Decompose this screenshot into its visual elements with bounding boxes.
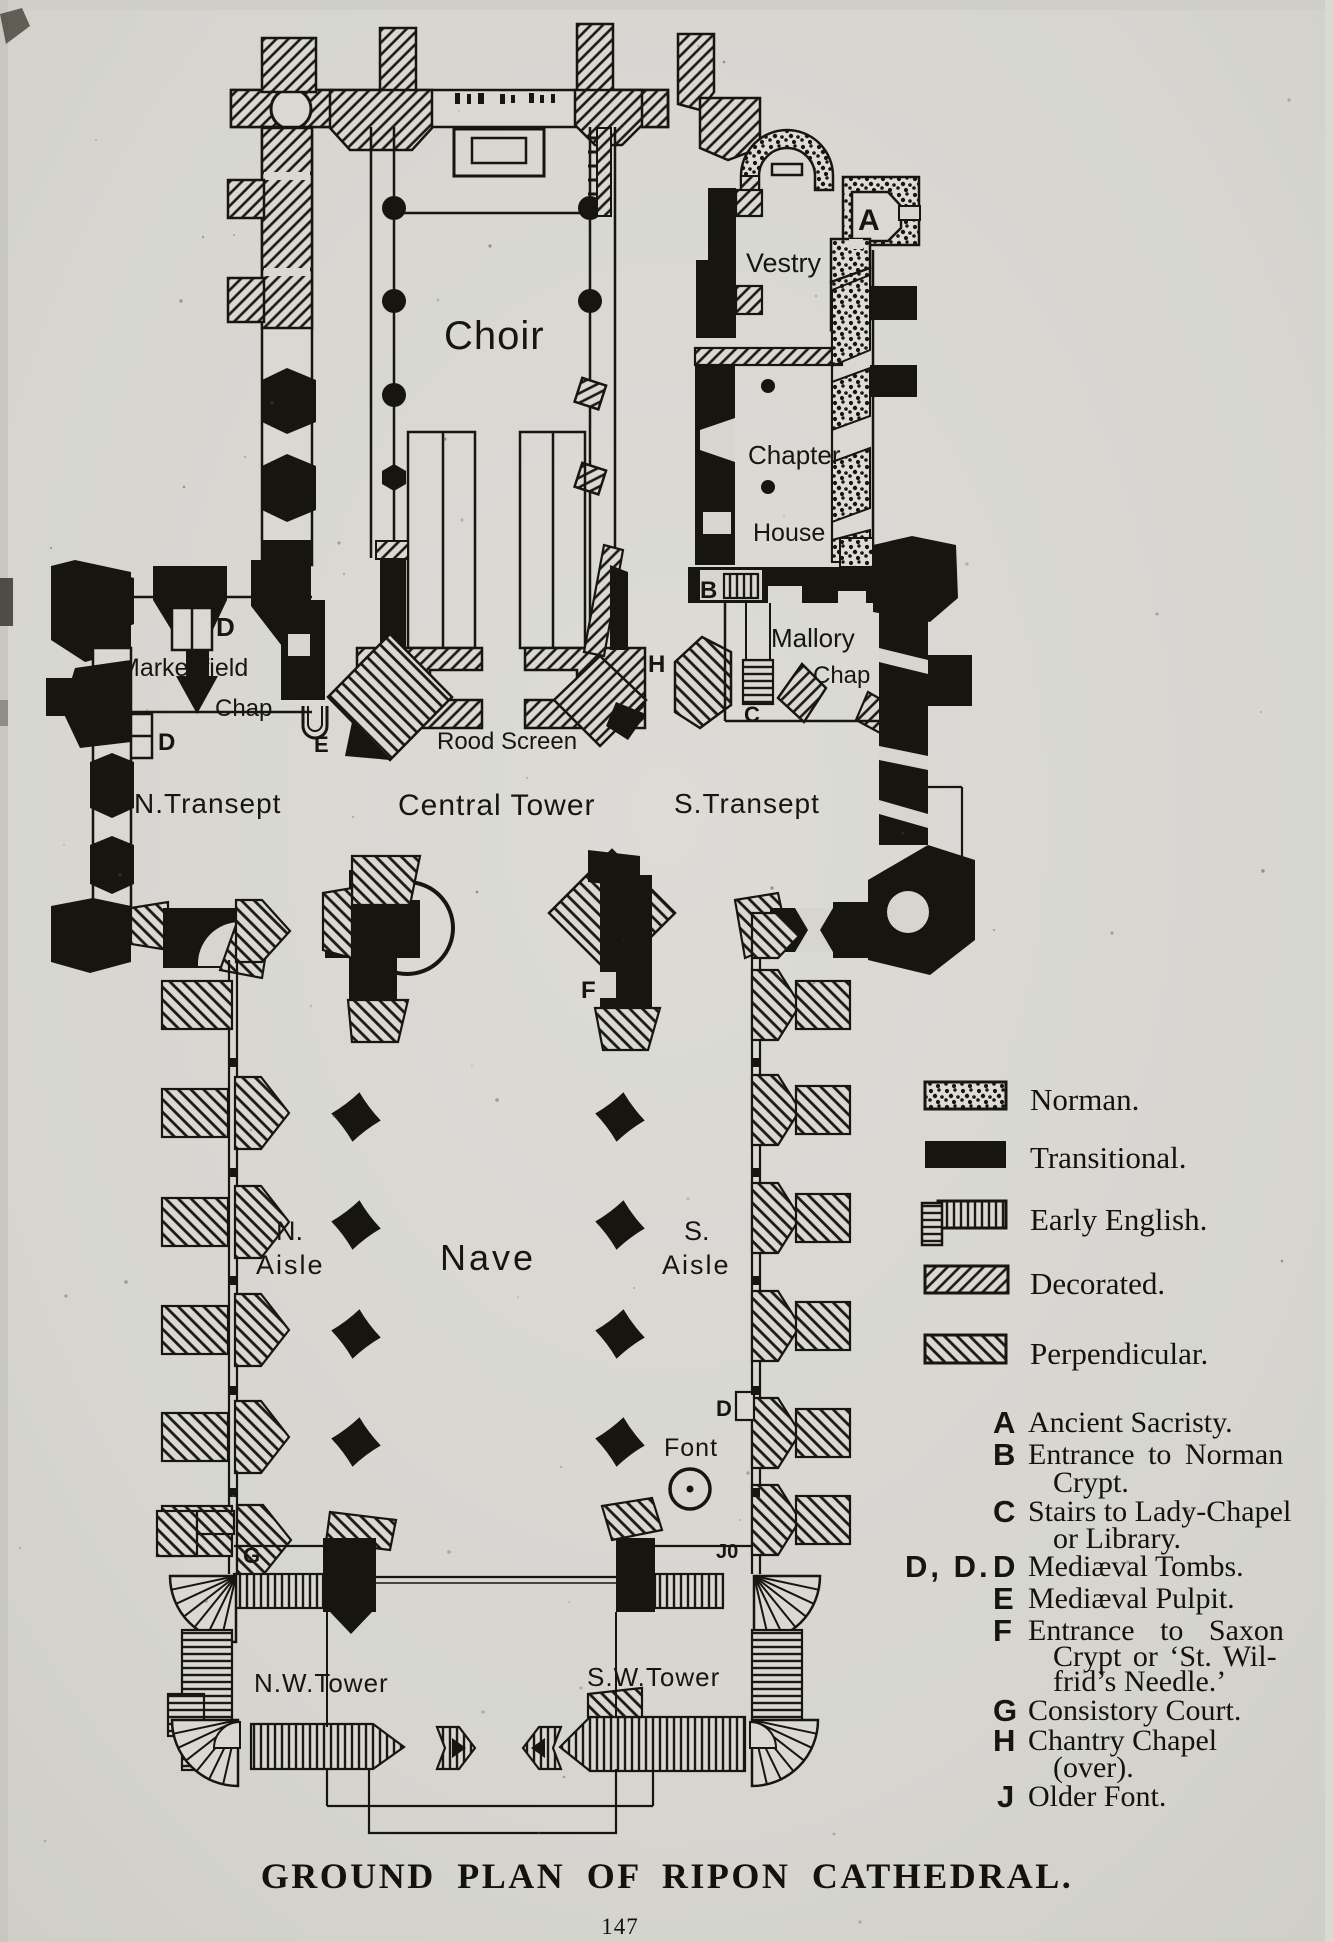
svg-text:GROUND PLAN OF RIPON CATHEDRAL: GROUND PLAN OF RIPON CATHEDRAL. bbox=[261, 1856, 1074, 1896]
svg-text:C: C bbox=[744, 702, 760, 727]
svg-text:Transitional.: Transitional. bbox=[1030, 1140, 1186, 1175]
svg-text:D: D bbox=[158, 729, 175, 756]
svg-text:Decorated.: Decorated. bbox=[1030, 1266, 1165, 1301]
svg-text:Consistory Court.: Consistory Court. bbox=[1028, 1694, 1241, 1727]
svg-text:Ancient Sacristy.: Ancient Sacristy. bbox=[1028, 1406, 1233, 1439]
svg-text:House: House bbox=[753, 519, 825, 547]
svg-text:F: F bbox=[581, 977, 596, 1004]
svg-text:Chapter: Chapter bbox=[748, 440, 841, 470]
svg-text:Aisle: Aisle bbox=[256, 1250, 325, 1280]
svg-text:Mallory: Mallory bbox=[771, 623, 855, 653]
svg-text:Mediæval Tombs.: Mediæval Tombs. bbox=[1028, 1550, 1244, 1583]
svg-text:S.W.Tower: S.W.Tower bbox=[587, 1662, 720, 1692]
svg-text:D, D.: D, D. bbox=[905, 1549, 991, 1584]
svg-text:S.: S. bbox=[684, 1216, 710, 1246]
svg-text:H: H bbox=[993, 1723, 1015, 1758]
svg-text:E: E bbox=[314, 732, 329, 757]
svg-text:Vestry: Vestry bbox=[746, 248, 822, 278]
svg-text:C: C bbox=[993, 1494, 1015, 1529]
svg-text:E: E bbox=[993, 1581, 1014, 1616]
svg-text:N.: N. bbox=[276, 1216, 303, 1246]
svg-text:B: B bbox=[700, 577, 717, 604]
svg-text:S.Transept: S.Transept bbox=[674, 788, 820, 819]
svg-text:Chap: Chap bbox=[215, 695, 272, 722]
svg-text:F: F bbox=[993, 1613, 1012, 1648]
svg-text:N.Transept: N.Transept bbox=[134, 788, 281, 819]
svg-text:Older Font.: Older Font. bbox=[1028, 1780, 1166, 1813]
svg-text:H: H bbox=[648, 651, 665, 678]
svg-text:J: J bbox=[997, 1779, 1014, 1814]
svg-text:A: A bbox=[993, 1405, 1015, 1440]
svg-text:Early English.: Early English. bbox=[1030, 1202, 1207, 1237]
svg-text:Norman.: Norman. bbox=[1030, 1082, 1139, 1117]
svg-text:N.W.Tower: N.W.Tower bbox=[254, 1668, 389, 1698]
svg-text:Aisle: Aisle bbox=[662, 1250, 731, 1280]
svg-text:J0: J0 bbox=[716, 1541, 738, 1563]
svg-text:A: A bbox=[858, 204, 880, 237]
svg-text:G: G bbox=[243, 1543, 260, 1568]
svg-text:D: D bbox=[716, 1396, 732, 1421]
svg-text:Central Tower: Central Tower bbox=[398, 789, 596, 822]
svg-text:D: D bbox=[216, 612, 235, 642]
svg-text:Rood Screen: Rood Screen bbox=[437, 728, 577, 755]
svg-text:Font: Font bbox=[664, 1434, 718, 1462]
svg-text:Nave: Nave bbox=[440, 1237, 536, 1278]
svg-text:B: B bbox=[993, 1437, 1015, 1472]
svg-text:Perpendicular.: Perpendicular. bbox=[1030, 1336, 1208, 1371]
svg-text:Choir: Choir bbox=[444, 314, 545, 358]
svg-text:147: 147 bbox=[601, 1914, 639, 1939]
svg-text:D: D bbox=[993, 1549, 1015, 1584]
svg-text:Mediæval Pulpit.: Mediæval Pulpit. bbox=[1028, 1582, 1235, 1615]
